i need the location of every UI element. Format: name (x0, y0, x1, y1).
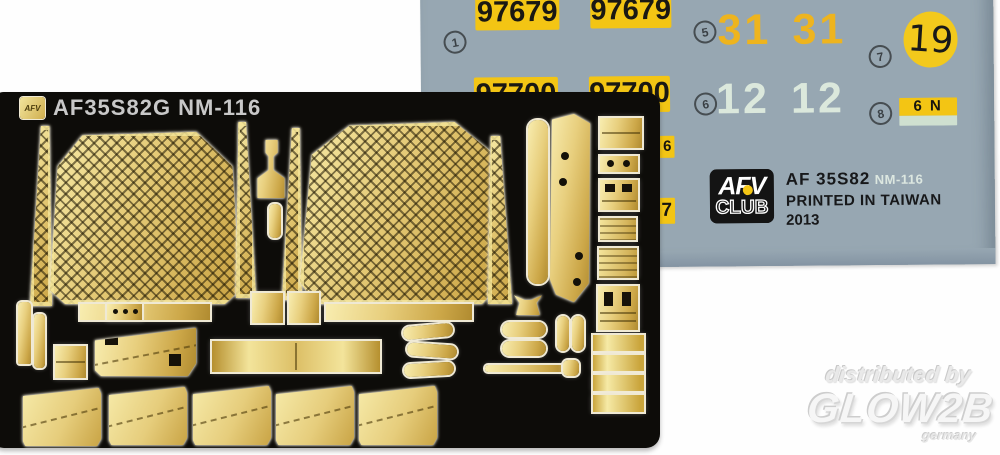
fret-title: AF35S82G NM-116 (53, 95, 261, 121)
decal-marker-7: 7 (867, 43, 894, 70)
stacked-squares-part (55, 346, 86, 378)
decal-6n-mint-strip (899, 115, 957, 126)
small-part-hatch (600, 118, 642, 148)
decal-12-a: 12 (716, 79, 770, 119)
detail-rect-part (107, 304, 142, 320)
small-part-louver-a (600, 218, 636, 240)
afv-club-logo: AFV CLUB (710, 169, 774, 224)
decal-97679-a: 97679 (475, 0, 559, 31)
decal-marker-8: 8 (867, 100, 894, 127)
watermark-brand: GLOW2B (741, 388, 995, 428)
maker-text-block: AF 35S82 NM-116 PRINTED IN TAIWAN 2013 (786, 168, 942, 228)
fold-plate-2 (109, 387, 187, 445)
oval-part-a (557, 316, 569, 351)
decal-marker-5: 5 (692, 19, 719, 46)
decal-marker-6: 6 (692, 91, 719, 118)
small-part-louver-b (599, 248, 637, 278)
grille-left-side-wing-a (30, 126, 52, 306)
long-bar-part (212, 341, 380, 372)
decal-12-b: 12 (791, 78, 845, 118)
wavy-clip-3 (404, 362, 455, 378)
maker-product-code: AF 35S82 (786, 169, 871, 189)
blade-part-right (550, 114, 590, 302)
fold-plate-3 (193, 386, 271, 445)
fret-logo-chip: AFV (20, 97, 45, 119)
marker-8-number: 8 (876, 106, 885, 121)
decal-97679-b: 97679 (590, 0, 671, 29)
grille-right-side-wing-a (282, 128, 302, 300)
afv-logo-bottom-text: CLUB (716, 198, 769, 218)
fold-plate-5 (359, 386, 437, 445)
blade-part-left (528, 120, 548, 284)
grille-right-side-wing-b (488, 136, 512, 304)
square-plate-b (289, 293, 319, 323)
decal-6n-text: 6 N (899, 97, 957, 116)
decal-31-a: 31 (717, 10, 771, 50)
grille-left-skirt (80, 304, 210, 320)
marker-7-number: 7 (876, 49, 885, 64)
marker-5-number: 5 (700, 25, 709, 40)
maker-origin: PRINTED IN TAIWAN (786, 191, 942, 209)
strip-part-b (34, 314, 45, 368)
decal-19-number: 19 (906, 18, 954, 62)
small-part-clamps (600, 156, 638, 172)
grille-left-side-wing-b (236, 122, 256, 298)
grille-right-skirt (326, 304, 472, 320)
pill-bar-b (502, 341, 546, 356)
oval-part-b (572, 316, 584, 351)
wavy-clip-2 (407, 342, 458, 358)
fold-plate-4 (276, 386, 354, 445)
small-part-pads (600, 180, 638, 210)
square-plate-a (252, 293, 283, 323)
small-part-slots (598, 286, 638, 330)
tow-rod-part (485, 365, 565, 372)
decal-marker-1: 1 (442, 29, 469, 56)
decal-6n: 6 N (899, 97, 957, 126)
bracket-head-part (514, 293, 542, 315)
photo-etch-fret: AFV AF35S82G NM-116 (0, 92, 660, 448)
maker-variant-code: NM-116 (875, 172, 924, 187)
distributor-watermark: distributed by GLOW2B germany (740, 362, 999, 443)
marker-1-number: 1 (450, 35, 459, 50)
wavy-clip-1 (403, 323, 454, 340)
afv-logo-top-text: AFV (718, 174, 765, 198)
maker-year: 2013 (786, 210, 942, 228)
grille-left-mesh (50, 132, 240, 304)
angled-plate-part (95, 328, 196, 376)
decal-19-roundel: 19 (902, 10, 959, 69)
marker-6-number: 6 (701, 97, 710, 112)
tow-rod-handle (563, 360, 579, 376)
afv-logo-yellow-dot (742, 185, 752, 195)
fold-plate-1 (23, 388, 101, 446)
grille-right-mesh (300, 122, 498, 304)
decal-31-b: 31 (792, 9, 846, 49)
pin-part (269, 204, 281, 238)
four-stack-part (593, 335, 644, 412)
pill-bar-a (502, 322, 546, 337)
strip-part-a (18, 302, 31, 364)
